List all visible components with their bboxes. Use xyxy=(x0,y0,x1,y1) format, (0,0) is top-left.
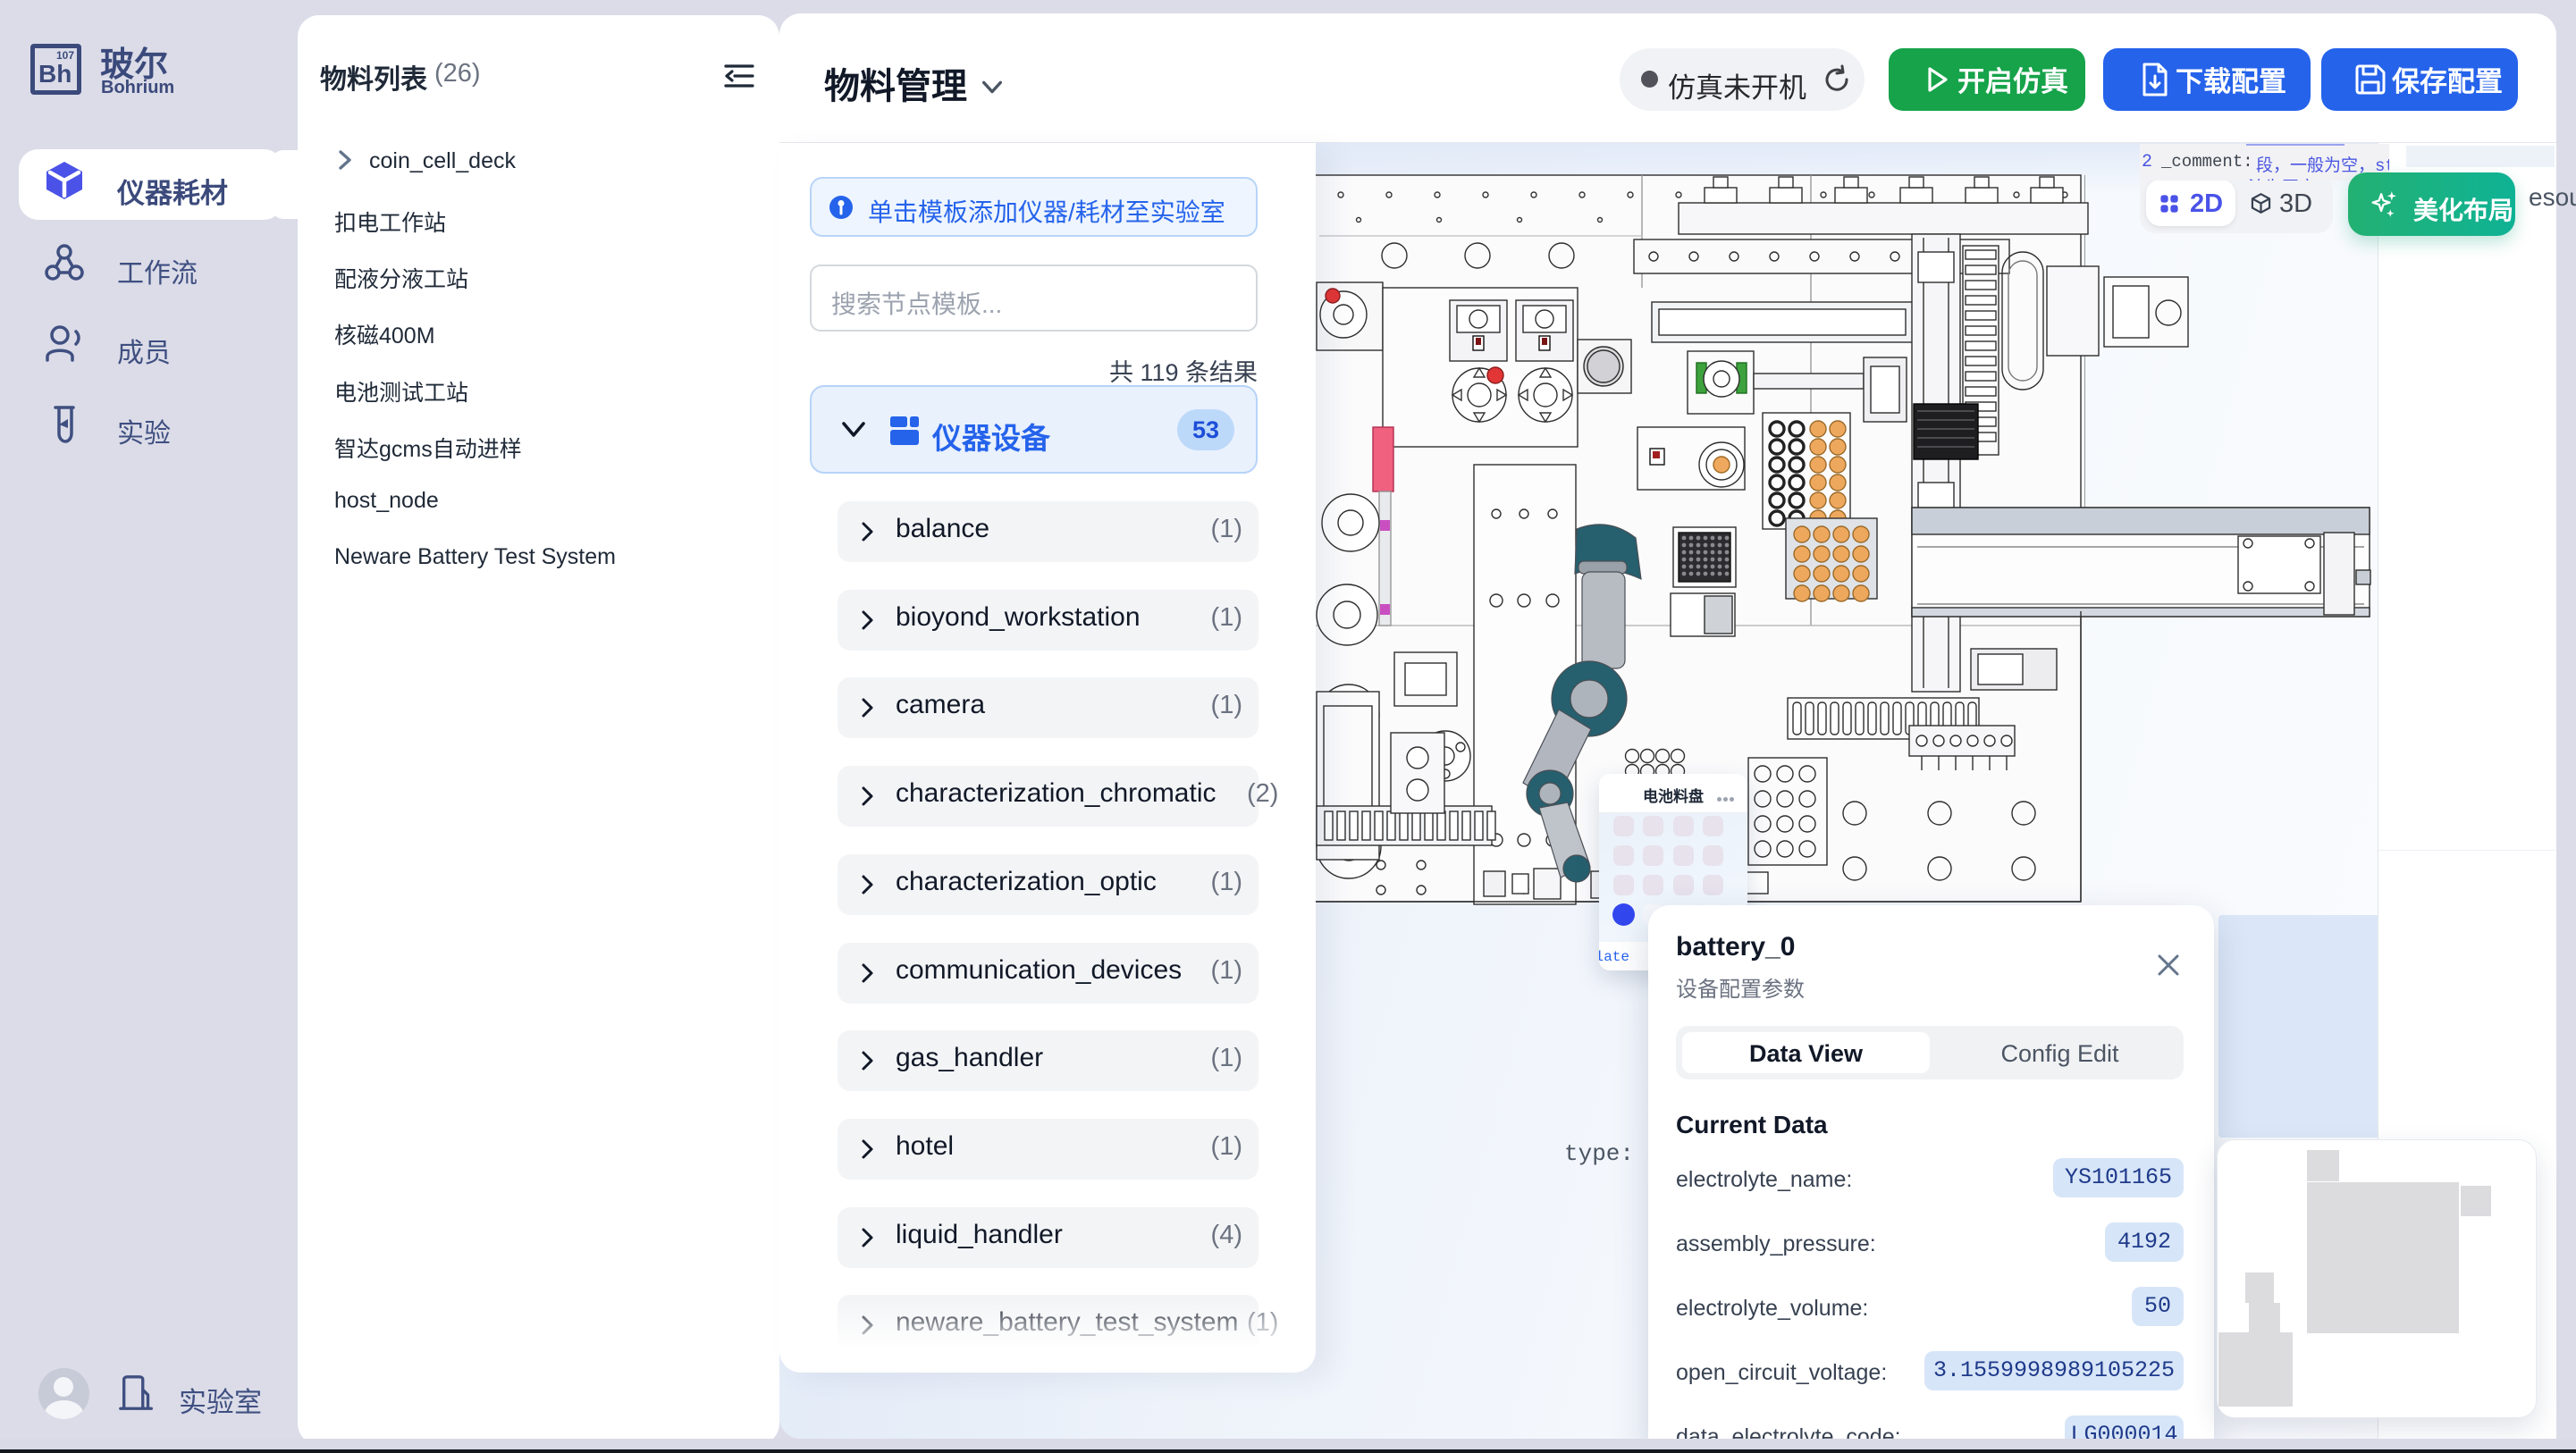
svg-text:type:: type: xyxy=(1564,1140,1634,1167)
